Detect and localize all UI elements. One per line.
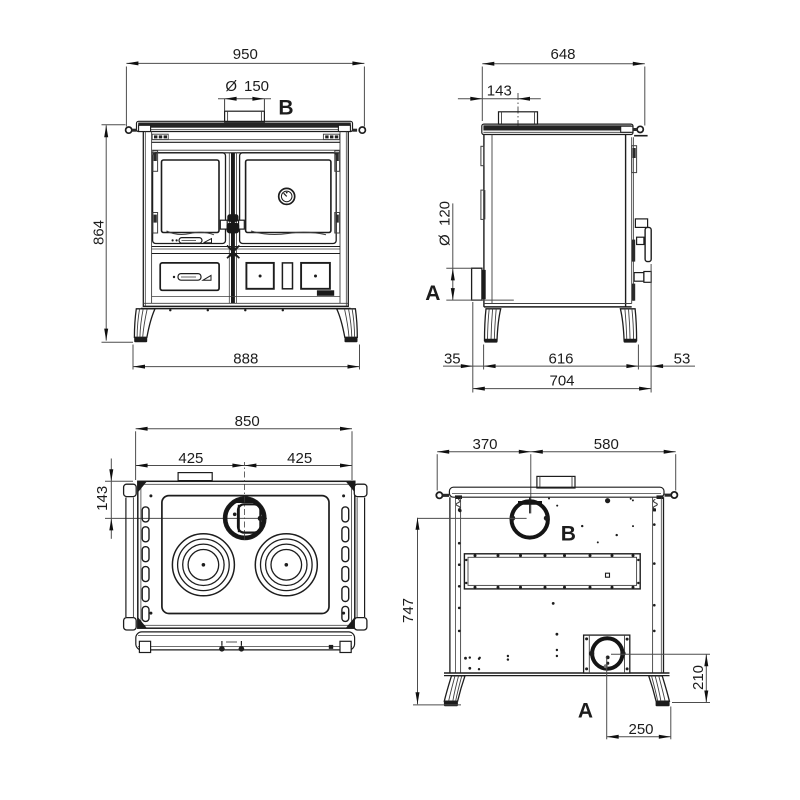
svg-text:210: 210 (690, 665, 707, 690)
svg-text:A: A (425, 282, 440, 305)
svg-text:425: 425 (178, 450, 203, 467)
svg-text:143: 143 (487, 83, 512, 100)
svg-text:648: 648 (550, 46, 575, 63)
svg-text:B: B (278, 97, 293, 120)
svg-text:B: B (561, 523, 576, 546)
svg-text:425: 425 (287, 450, 312, 467)
svg-text:A: A (578, 700, 593, 723)
svg-text:143: 143 (94, 486, 111, 511)
svg-text:888: 888 (233, 351, 258, 368)
svg-text:616: 616 (548, 351, 573, 368)
svg-text:580: 580 (594, 436, 619, 453)
svg-text:950: 950 (233, 46, 258, 63)
svg-text:150: 150 (244, 78, 269, 95)
svg-text:Ø: Ø (225, 78, 237, 95)
svg-text:747: 747 (400, 598, 417, 623)
svg-text:704: 704 (549, 373, 574, 390)
svg-text:53: 53 (674, 351, 691, 368)
svg-text:370: 370 (472, 436, 497, 453)
svg-text:35: 35 (444, 351, 461, 368)
svg-text:850: 850 (235, 413, 260, 430)
svg-text:250: 250 (628, 721, 653, 738)
svg-text:Ø 120: Ø 120 (437, 201, 454, 246)
svg-text:864: 864 (91, 220, 108, 245)
